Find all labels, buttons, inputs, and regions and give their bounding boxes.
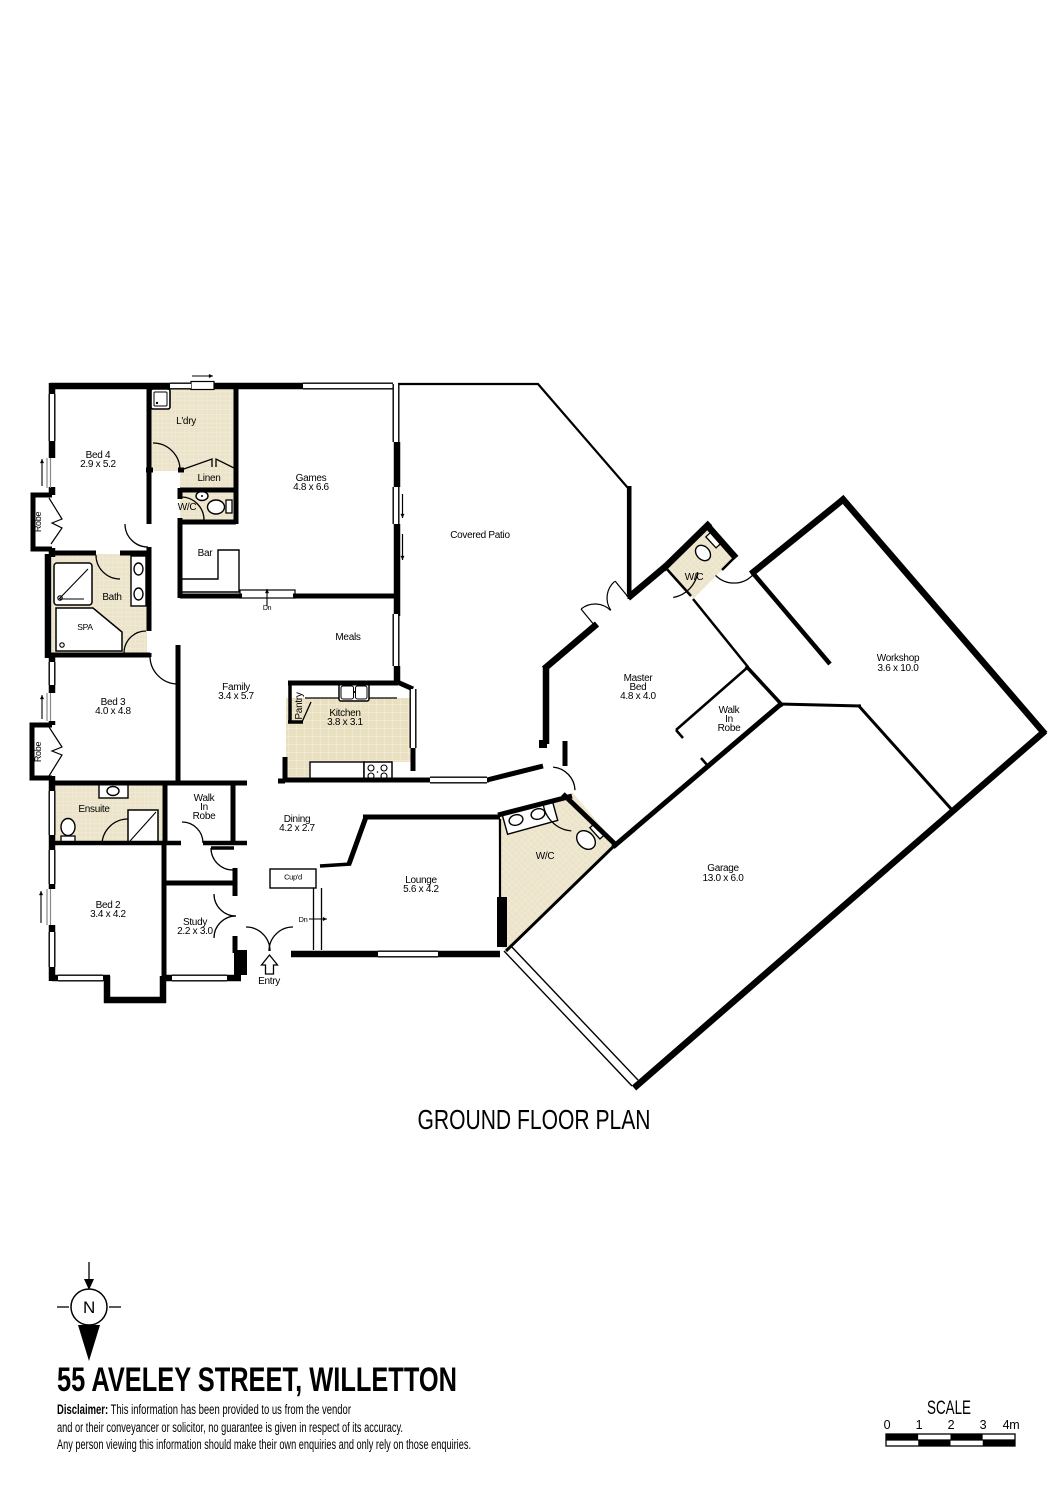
svg-text:Ensuite: Ensuite — [78, 804, 110, 815]
svg-text:4.0 x 4.8: 4.0 x 4.8 — [95, 706, 131, 717]
svg-text:2.2 x 3.0: 2.2 x 3.0 — [177, 926, 213, 937]
svg-text:Any person viewing this inform: Any person viewing this information shou… — [57, 1437, 471, 1452]
svg-text:Covered Patio: Covered Patio — [450, 530, 510, 541]
svg-text:0: 0 — [884, 1418, 891, 1432]
svg-text:3.4 x 4.2: 3.4 x 4.2 — [90, 909, 126, 920]
svg-text:Dn: Dn — [263, 605, 272, 612]
svg-text:Disclaimer: This information h: Disclaimer: This information has been pr… — [57, 1402, 351, 1417]
svg-text:4.8 x 4.0: 4.8 x 4.0 — [620, 691, 656, 702]
svg-text:N: N — [83, 1298, 95, 1317]
svg-text:and or their conveyancer or so: and or their conveyancer or solicitor, n… — [57, 1420, 403, 1435]
svg-text:SCALE: SCALE — [927, 1398, 971, 1419]
svg-text:3.6 x 10.0: 3.6 x 10.0 — [878, 663, 920, 674]
svg-text:3: 3 — [980, 1418, 987, 1432]
svg-text:4m: 4m — [1003, 1418, 1020, 1432]
svg-text:W/C: W/C — [685, 572, 704, 583]
svg-text:Robe: Robe — [193, 811, 216, 822]
svg-text:Robe: Robe — [33, 742, 43, 763]
svg-text:55 AVELEY STREET, WILLETTON: 55 AVELEY STREET, WILLETTON — [57, 1361, 457, 1399]
svg-text:3.4 x 5.7: 3.4 x 5.7 — [218, 691, 254, 702]
svg-text:5.6 x 4.2: 5.6 x 4.2 — [403, 884, 439, 895]
svg-text:W/C: W/C — [536, 851, 555, 862]
svg-text:2.9 x 5.2: 2.9 x 5.2 — [80, 459, 116, 470]
svg-text:Robe: Robe — [33, 512, 43, 533]
svg-text:4.2 x 2.7: 4.2 x 2.7 — [279, 823, 315, 834]
svg-text:Robe: Robe — [718, 723, 741, 734]
svg-text:3.8 x 3.1: 3.8 x 3.1 — [327, 717, 363, 728]
svg-text:4.8 x 6.6: 4.8 x 6.6 — [293, 482, 329, 493]
svg-text:Pantry: Pantry — [294, 692, 305, 719]
svg-text:L'dry: L'dry — [176, 416, 196, 427]
svg-text:Cup'd: Cup'd — [284, 873, 302, 882]
svg-text:Linen: Linen — [198, 473, 221, 484]
svg-text:Bath: Bath — [102, 592, 121, 603]
svg-text:SPA: SPA — [77, 622, 93, 632]
svg-text:1: 1 — [916, 1418, 923, 1432]
svg-text:Entry: Entry — [258, 976, 280, 987]
svg-text:GROUND FLOOR PLAN: GROUND FLOOR PLAN — [418, 1104, 651, 1135]
svg-text:13.0 x 6.0: 13.0 x 6.0 — [703, 873, 745, 884]
svg-text:Meals: Meals — [335, 632, 360, 643]
svg-text:Dn: Dn — [299, 915, 308, 924]
svg-text:W/C: W/C — [178, 502, 197, 513]
svg-text:2: 2 — [948, 1418, 955, 1432]
svg-text:Bar: Bar — [198, 548, 214, 559]
